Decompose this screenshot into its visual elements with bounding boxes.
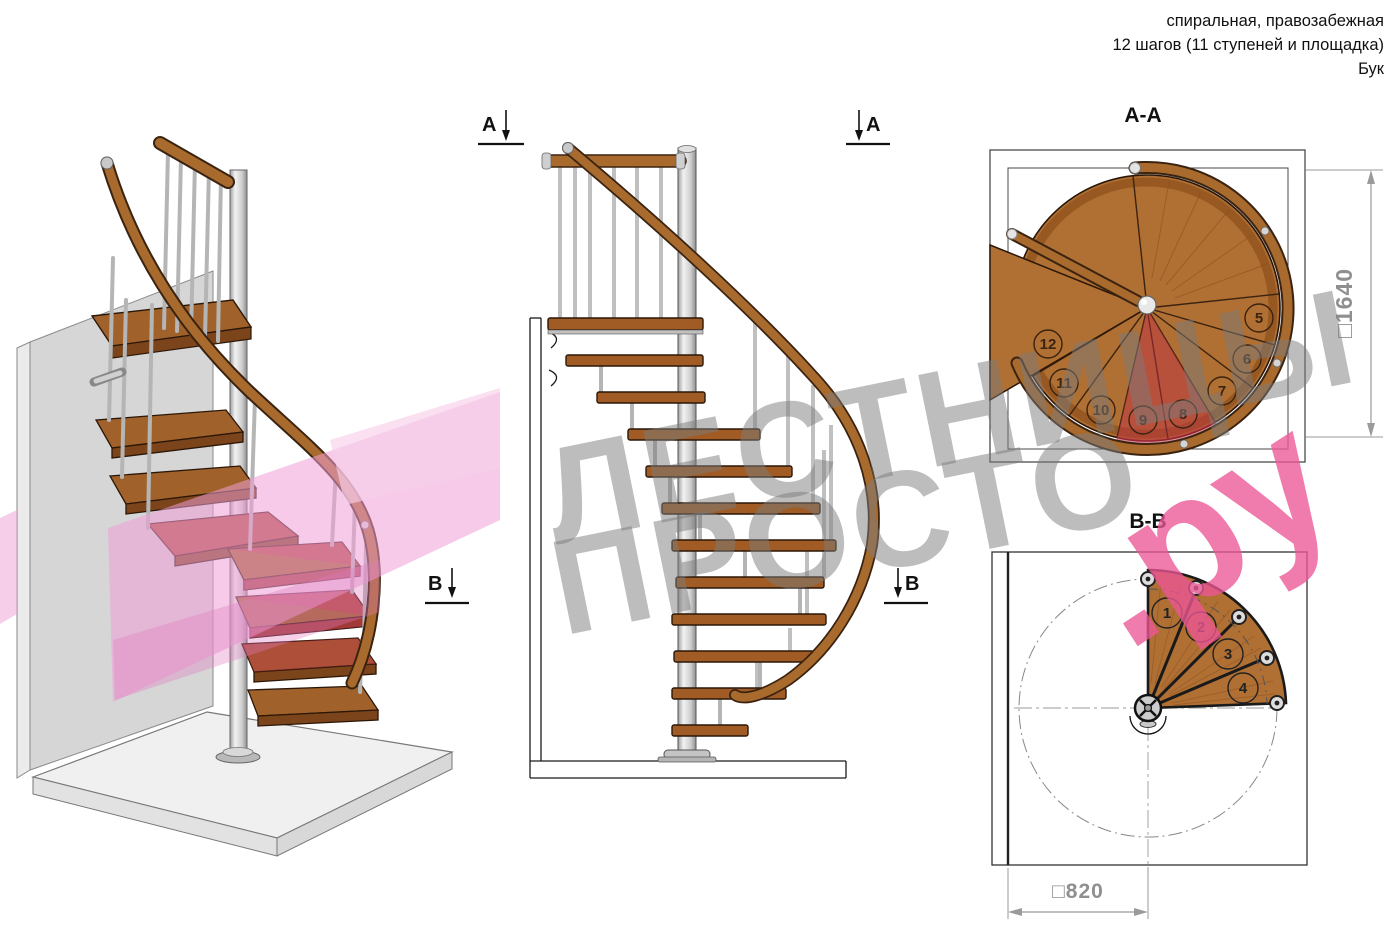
step-number: 5: [1255, 310, 1263, 327]
dim-arrow-up-icon: [1367, 170, 1375, 184]
elevation-pole-base-plate: [658, 757, 716, 762]
elevation-landing: [548, 318, 703, 330]
step-number: 12: [1040, 336, 1057, 353]
plan-view-aa: А-А: [990, 104, 1383, 462]
dimension-1640-label: □1640: [1331, 268, 1357, 338]
pole-base-collar: [223, 748, 253, 757]
drawing-sheet: А А В В А-А: [0, 0, 1400, 939]
staircase-drawing: А А В В А-А: [0, 0, 1400, 939]
plan-aa-title: А-А: [1124, 104, 1161, 127]
marker-b-left-label: В: [428, 573, 442, 595]
marker-a-left-label: А: [482, 114, 496, 136]
header-line-type: спиральная, правозабежная: [1112, 10, 1384, 34]
aa-handrail-cap: [1130, 163, 1141, 174]
elevation-pole-cap: [678, 146, 696, 153]
front-elevation-view: [530, 143, 874, 779]
step-number: 11: [1056, 375, 1072, 392]
center-pole: [230, 170, 247, 758]
header-note: спиральная, правозабежная 12 шагов (11 с…: [1112, 10, 1384, 82]
section-marker-b-left: В: [425, 568, 469, 603]
aa-center-pole: [1138, 296, 1156, 314]
header-line-material: Бук: [1112, 58, 1384, 82]
step-number: 3: [1224, 646, 1232, 663]
dim-arrow-right-icon: [1134, 908, 1148, 916]
aa-pole-highlight: [1141, 299, 1147, 305]
step-number: 4: [1239, 680, 1248, 697]
elevation-rail-cap-right: [676, 153, 685, 169]
aa-baluster-mount: [1261, 227, 1269, 235]
marker-a-right-label: А: [866, 114, 880, 136]
dim-arrow-left-icon: [1008, 908, 1022, 916]
iso-view: [0, 143, 500, 856]
step-number: 1: [1163, 605, 1171, 622]
aa-baluster-mount: [1273, 359, 1281, 367]
step-number: 10: [1093, 402, 1110, 419]
handrail-end-cap: [101, 157, 113, 169]
section-plane-b-left-part: [0, 510, 17, 624]
wall-edge: [17, 342, 30, 778]
step-number: 9: [1139, 412, 1147, 429]
dimension-1640: □1640: [1306, 170, 1383, 437]
section-marker-a-right: А: [846, 110, 890, 144]
elevation-rail-cap-left: [542, 153, 551, 169]
dimension-820-label: □820: [1052, 880, 1104, 903]
elevation-top-rail: [546, 155, 686, 167]
elevation-landing-trim: [548, 330, 703, 334]
plan-view-bb: В-В 1: [992, 510, 1307, 919]
elevation-handrail-cap: [563, 143, 574, 154]
section-marker-b-right: В: [884, 568, 928, 603]
aa-rail-cap: [1007, 229, 1017, 239]
step-number: 8: [1179, 406, 1187, 423]
step-number: 6: [1243, 351, 1251, 368]
dimension-820: □820: [1008, 867, 1148, 919]
elevation-outer-balusters: [755, 312, 831, 688]
header-line-steps: 12 шагов (11 ступеней и площадка): [1112, 34, 1384, 58]
marker-b-right-label: В: [905, 573, 919, 595]
aa-baluster-mount: [1180, 440, 1188, 448]
section-marker-a-left: А: [478, 110, 524, 144]
plan-bb-title: В-В: [1129, 510, 1166, 533]
step-number: 7: [1218, 383, 1226, 400]
dim-arrow-down-icon: [1367, 423, 1375, 437]
step-number: 2: [1197, 619, 1205, 636]
